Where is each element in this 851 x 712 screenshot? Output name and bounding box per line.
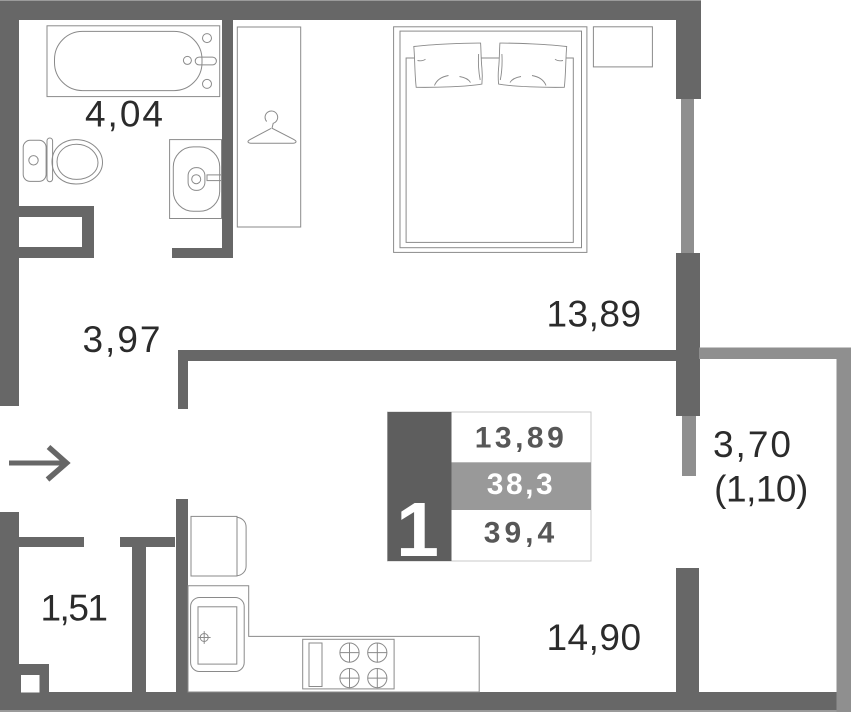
- svg-text:3,97: 3,97: [82, 319, 162, 360]
- svg-text:(1,10): (1,10): [714, 469, 808, 510]
- svg-text:13,89: 13,89: [475, 422, 568, 455]
- svg-text:1,51: 1,51: [40, 588, 106, 629]
- svg-text:39,4: 39,4: [484, 517, 558, 550]
- svg-text:3,70: 3,70: [713, 424, 793, 465]
- svg-text:38,3: 38,3: [487, 468, 555, 501]
- svg-text:13,89: 13,89: [546, 294, 641, 335]
- svg-text:4,04: 4,04: [85, 94, 165, 135]
- svg-text:1: 1: [396, 487, 439, 573]
- svg-text:14,90: 14,90: [546, 617, 641, 658]
